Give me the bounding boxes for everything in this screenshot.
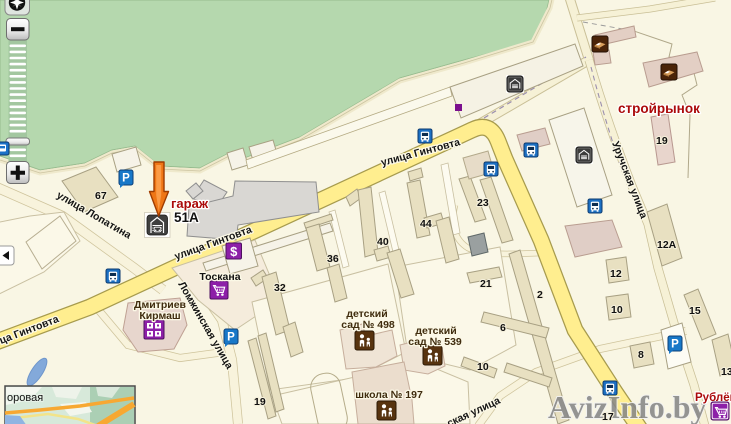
svg-text:Тоскана: Тоскана: [199, 271, 240, 283]
svg-text:стройрынок: стройрынок: [618, 101, 700, 116]
svg-text:13: 13: [721, 366, 731, 378]
svg-text:17: 17: [602, 411, 614, 423]
svg-text:51А: 51А: [174, 210, 199, 225]
svg-text:$: $: [230, 244, 238, 259]
svg-text:19: 19: [656, 135, 668, 147]
svg-text:гараж: гараж: [171, 196, 209, 211]
svg-text:15: 15: [689, 305, 701, 317]
svg-text:19: 19: [254, 396, 266, 408]
svg-text:оровая: оровая: [7, 392, 43, 404]
svg-text:10: 10: [477, 361, 489, 373]
svg-text:12А: 12А: [657, 239, 677, 251]
svg-text:40: 40: [377, 236, 389, 248]
svg-text:21: 21: [480, 278, 492, 290]
svg-text:23: 23: [477, 197, 489, 209]
svg-text:2: 2: [537, 289, 543, 301]
svg-text:AvizInfo.by: AvizInfo.by: [548, 389, 707, 424]
svg-text:32: 32: [274, 282, 286, 294]
svg-text:67: 67: [95, 190, 107, 202]
svg-text:36: 36: [327, 253, 339, 265]
svg-text:10: 10: [611, 304, 623, 316]
svg-text:школа № 197: школа № 197: [355, 389, 423, 401]
svg-text:8: 8: [638, 349, 644, 361]
svg-text:Кирмаш: Кирмаш: [139, 310, 180, 322]
svg-text:сад № 498: сад № 498: [341, 319, 395, 331]
svg-text:6: 6: [500, 322, 506, 334]
svg-text:44: 44: [420, 218, 432, 230]
svg-text:12: 12: [610, 268, 622, 280]
svg-text:сад № 539: сад № 539: [408, 336, 462, 348]
